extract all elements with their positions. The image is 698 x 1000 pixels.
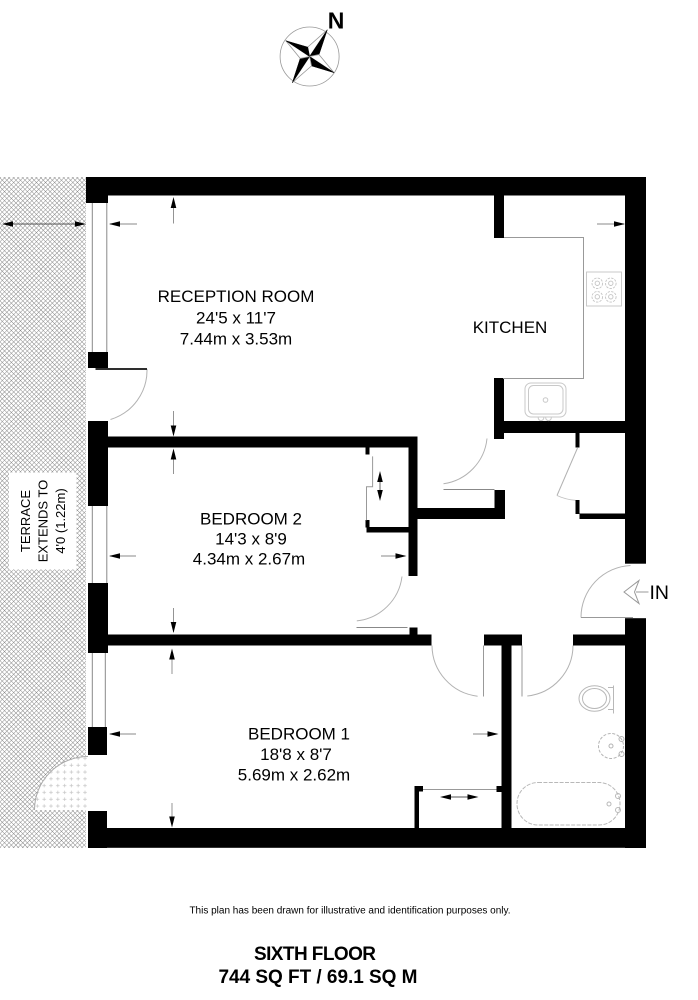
svg-text:KITCHEN: KITCHEN <box>473 318 548 337</box>
svg-text:5.69m x 2.62m: 5.69m x 2.62m <box>238 766 350 785</box>
svg-text:BEDROOM 2: BEDROOM 2 <box>200 510 302 529</box>
svg-text:744 SQ FT / 69.1 SQ M: 744 SQ FT / 69.1 SQ M <box>219 967 418 988</box>
svg-text:18'8 x 8'7: 18'8 x 8'7 <box>260 745 332 764</box>
svg-text:4'0 (1.22m): 4'0 (1.22m) <box>53 488 68 553</box>
svg-text:14'3 x 8'9: 14'3 x 8'9 <box>215 530 287 549</box>
svg-text:IN: IN <box>650 582 670 604</box>
svg-text:TERRACE: TERRACE <box>18 490 33 552</box>
svg-text:7.44m x 3.53m: 7.44m x 3.53m <box>180 330 292 349</box>
svg-text:4.34m x 2.67m: 4.34m x 2.67m <box>193 550 305 569</box>
svg-text:SIXTH FLOOR: SIXTH FLOOR <box>254 944 376 965</box>
svg-text:This plan has been drawn for i: This plan has been drawn for illustrativ… <box>189 906 510 917</box>
svg-text:N: N <box>328 8 345 34</box>
svg-text:RECEPTION ROOM: RECEPTION ROOM <box>158 287 315 306</box>
svg-text:EXTENDS TO: EXTENDS TO <box>36 480 51 563</box>
svg-text:BEDROOM 1: BEDROOM 1 <box>248 725 350 744</box>
svg-text:24'5 x 11'7: 24'5 x 11'7 <box>196 309 276 328</box>
